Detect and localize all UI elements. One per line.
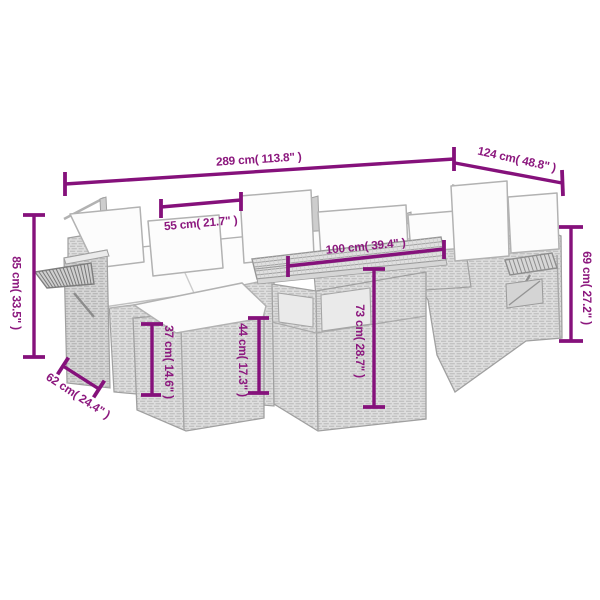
svg-text:73 cm( 28.7" ): 73 cm( 28.7" ) [353, 304, 367, 378]
svg-text:85 cm( 33.5" ): 85 cm( 33.5" ) [10, 256, 24, 330]
svg-text:44 cm( 17.3" ): 44 cm( 17.3" ) [236, 323, 250, 397]
svg-text:37 cm( 14.6" ): 37 cm( 14.6" ) [162, 325, 176, 399]
svg-text:69 cm( 27.2" ): 69 cm( 27.2" ) [580, 251, 594, 325]
